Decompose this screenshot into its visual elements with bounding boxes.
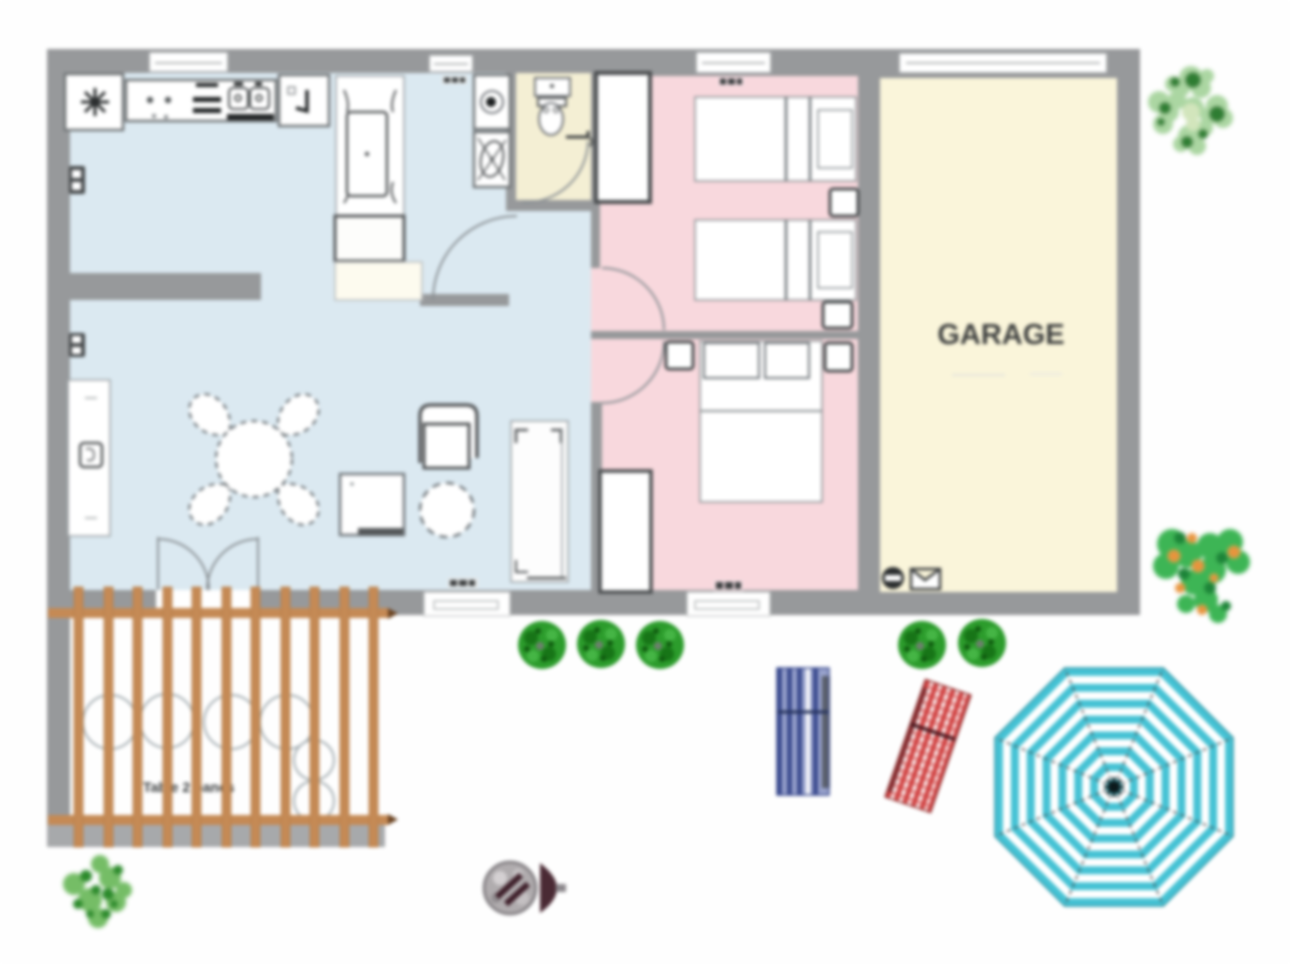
svg-text:Table 2 bancs: Table 2 bancs — [143, 779, 235, 795]
svg-text:GARAGE: GARAGE — [937, 319, 1064, 351]
